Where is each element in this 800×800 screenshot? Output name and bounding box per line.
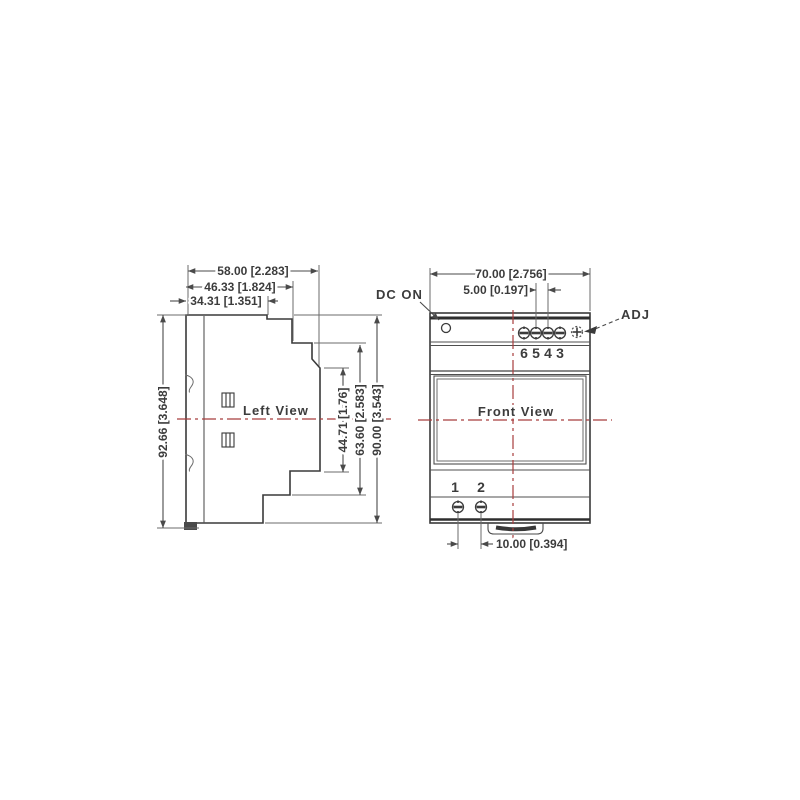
terminal-2-label: 2 (477, 479, 485, 495)
dim-terminal-pitch-label: 5.00 [0.197] (463, 283, 528, 297)
left-view-title: Left View (243, 403, 309, 418)
front-view: 6 5 4 3 1 2 (376, 267, 650, 551)
terminal-3-label: 3 (556, 345, 564, 361)
dim-depth-total-label: 58.00 [2.283] (217, 264, 288, 278)
adj-label: ADJ (621, 307, 650, 322)
terminal-screw-6 (519, 327, 530, 340)
terminal-4-label: 4 (544, 345, 552, 361)
terminal-screw-5 (531, 327, 542, 340)
dimension-drawing: 58.00 [2.283] 46.33 [1.824] 34.31 [1.351… (0, 0, 800, 800)
terminal-6-label: 6 (520, 345, 528, 361)
dim-depth-upper-label: 46.33 [1.824] (204, 280, 275, 294)
dim-bottom-pitch-label: 10.00 [0.394] (496, 537, 567, 551)
dim-height-front-label: 44.71 [1.76] (336, 388, 350, 453)
dim-height-body-label: 90.00 [3.543] (370, 384, 384, 455)
terminal-symbol-lower (222, 433, 234, 447)
dim-depth-top-label: 34.31 [1.351] (190, 294, 261, 308)
terminal-screw-4 (543, 327, 554, 340)
dim-width-label: 70.00 [2.756] (475, 267, 546, 281)
left-view: 58.00 [2.283] 46.33 [1.824] 34.31 [1.351… (156, 264, 393, 530)
adj-potentiometer (572, 327, 583, 338)
dim-height-step-label: 63.60 [2.583] (353, 384, 367, 455)
front-view-title: Front View (478, 404, 554, 419)
terminal-symbol-upper (222, 393, 234, 407)
dc-on-label: DC ON (376, 287, 423, 302)
din-slider-tab (488, 523, 543, 534)
dc-on-led (442, 324, 451, 333)
dim-height-overall-label: 92.66 [3.648] (156, 386, 170, 457)
terminal-screw-3 (555, 327, 566, 340)
din-clip-foot (184, 522, 197, 530)
terminal-screw-1 (453, 501, 464, 514)
terminal-screw-2 (476, 501, 487, 514)
terminal-1-label: 1 (451, 479, 459, 495)
terminal-5-label: 5 (532, 345, 540, 361)
adj-leader (595, 319, 619, 329)
